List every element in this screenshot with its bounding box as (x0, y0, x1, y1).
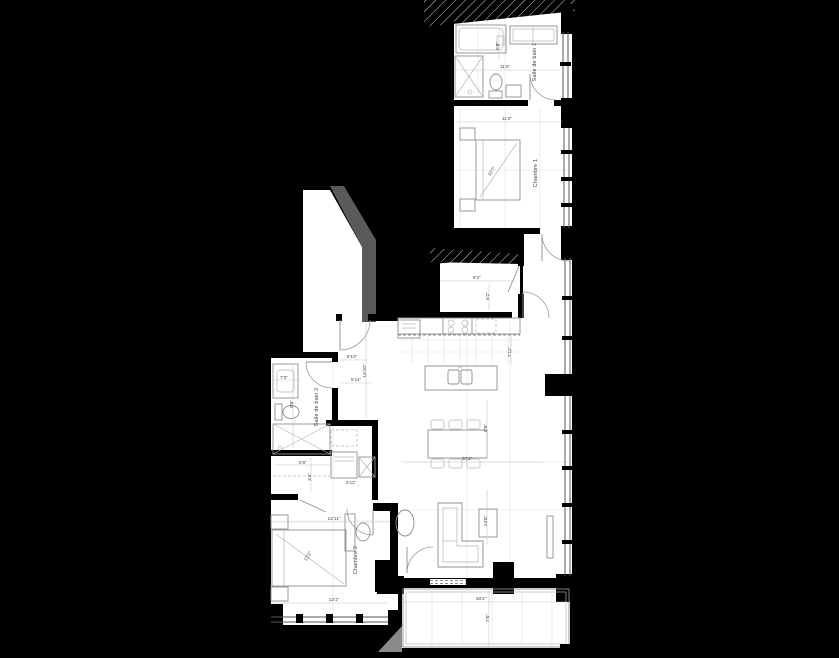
dim-bed2-bottom: 13'1" (329, 597, 340, 603)
bathroom-1-floor (452, 10, 572, 106)
dim-living-width: 20'1" (462, 456, 473, 462)
room-label-chambre-2: Chambre 2 (353, 546, 359, 574)
dim-corridor-length: 13'10" (362, 364, 368, 378)
dim-closet-width: 5'6" (299, 460, 307, 466)
dim-dining-depth: 8'8" (483, 424, 489, 432)
dim-closet-depth: 3'4" (307, 473, 313, 481)
dim-bed1-width: 11'2" (502, 116, 513, 122)
dim-walkin-width: 8'2" (473, 275, 481, 281)
dim-bath2-depth: 9'6" (289, 400, 295, 408)
dim-laundry: 2'11" (346, 480, 357, 486)
room-label-salle-de-bain-1: Salle de bain 1 (532, 43, 538, 82)
walkin-floor (433, 256, 520, 318)
dim-balcony-width: 18'2" (476, 596, 487, 602)
dim-bath2-width: 7'0" (280, 375, 288, 381)
balcony-door-gap (430, 579, 466, 585)
room-label-salle-de-bain-2: Salle de bain 2 (314, 388, 320, 427)
floor-plan-svg: Chambre 1 Salle de bain 1 Chambre 2 Sall… (0, 0, 839, 658)
dim-kitchen-depth: 7'11" (507, 347, 513, 358)
dim-bathtub: 5'8" (495, 42, 501, 50)
dim-entry-width: 6'10" (347, 354, 358, 360)
dim-bath1-width: 11'2" (500, 64, 511, 70)
dim-living-depth: 13'8" (483, 515, 489, 526)
dim-walkin-depth: 6'2" (485, 292, 491, 300)
dim-bed2-width: 12'11" (328, 516, 341, 522)
floor-plan-canvas: Chambre 1 Salle de bain 1 Chambre 2 Sall… (0, 0, 839, 658)
room-label-chambre-1: Chambre 1 (533, 159, 539, 187)
dim-balcony-depth: 7'6" (485, 614, 491, 622)
dim-entry-width-2: 5'11" (351, 377, 362, 383)
